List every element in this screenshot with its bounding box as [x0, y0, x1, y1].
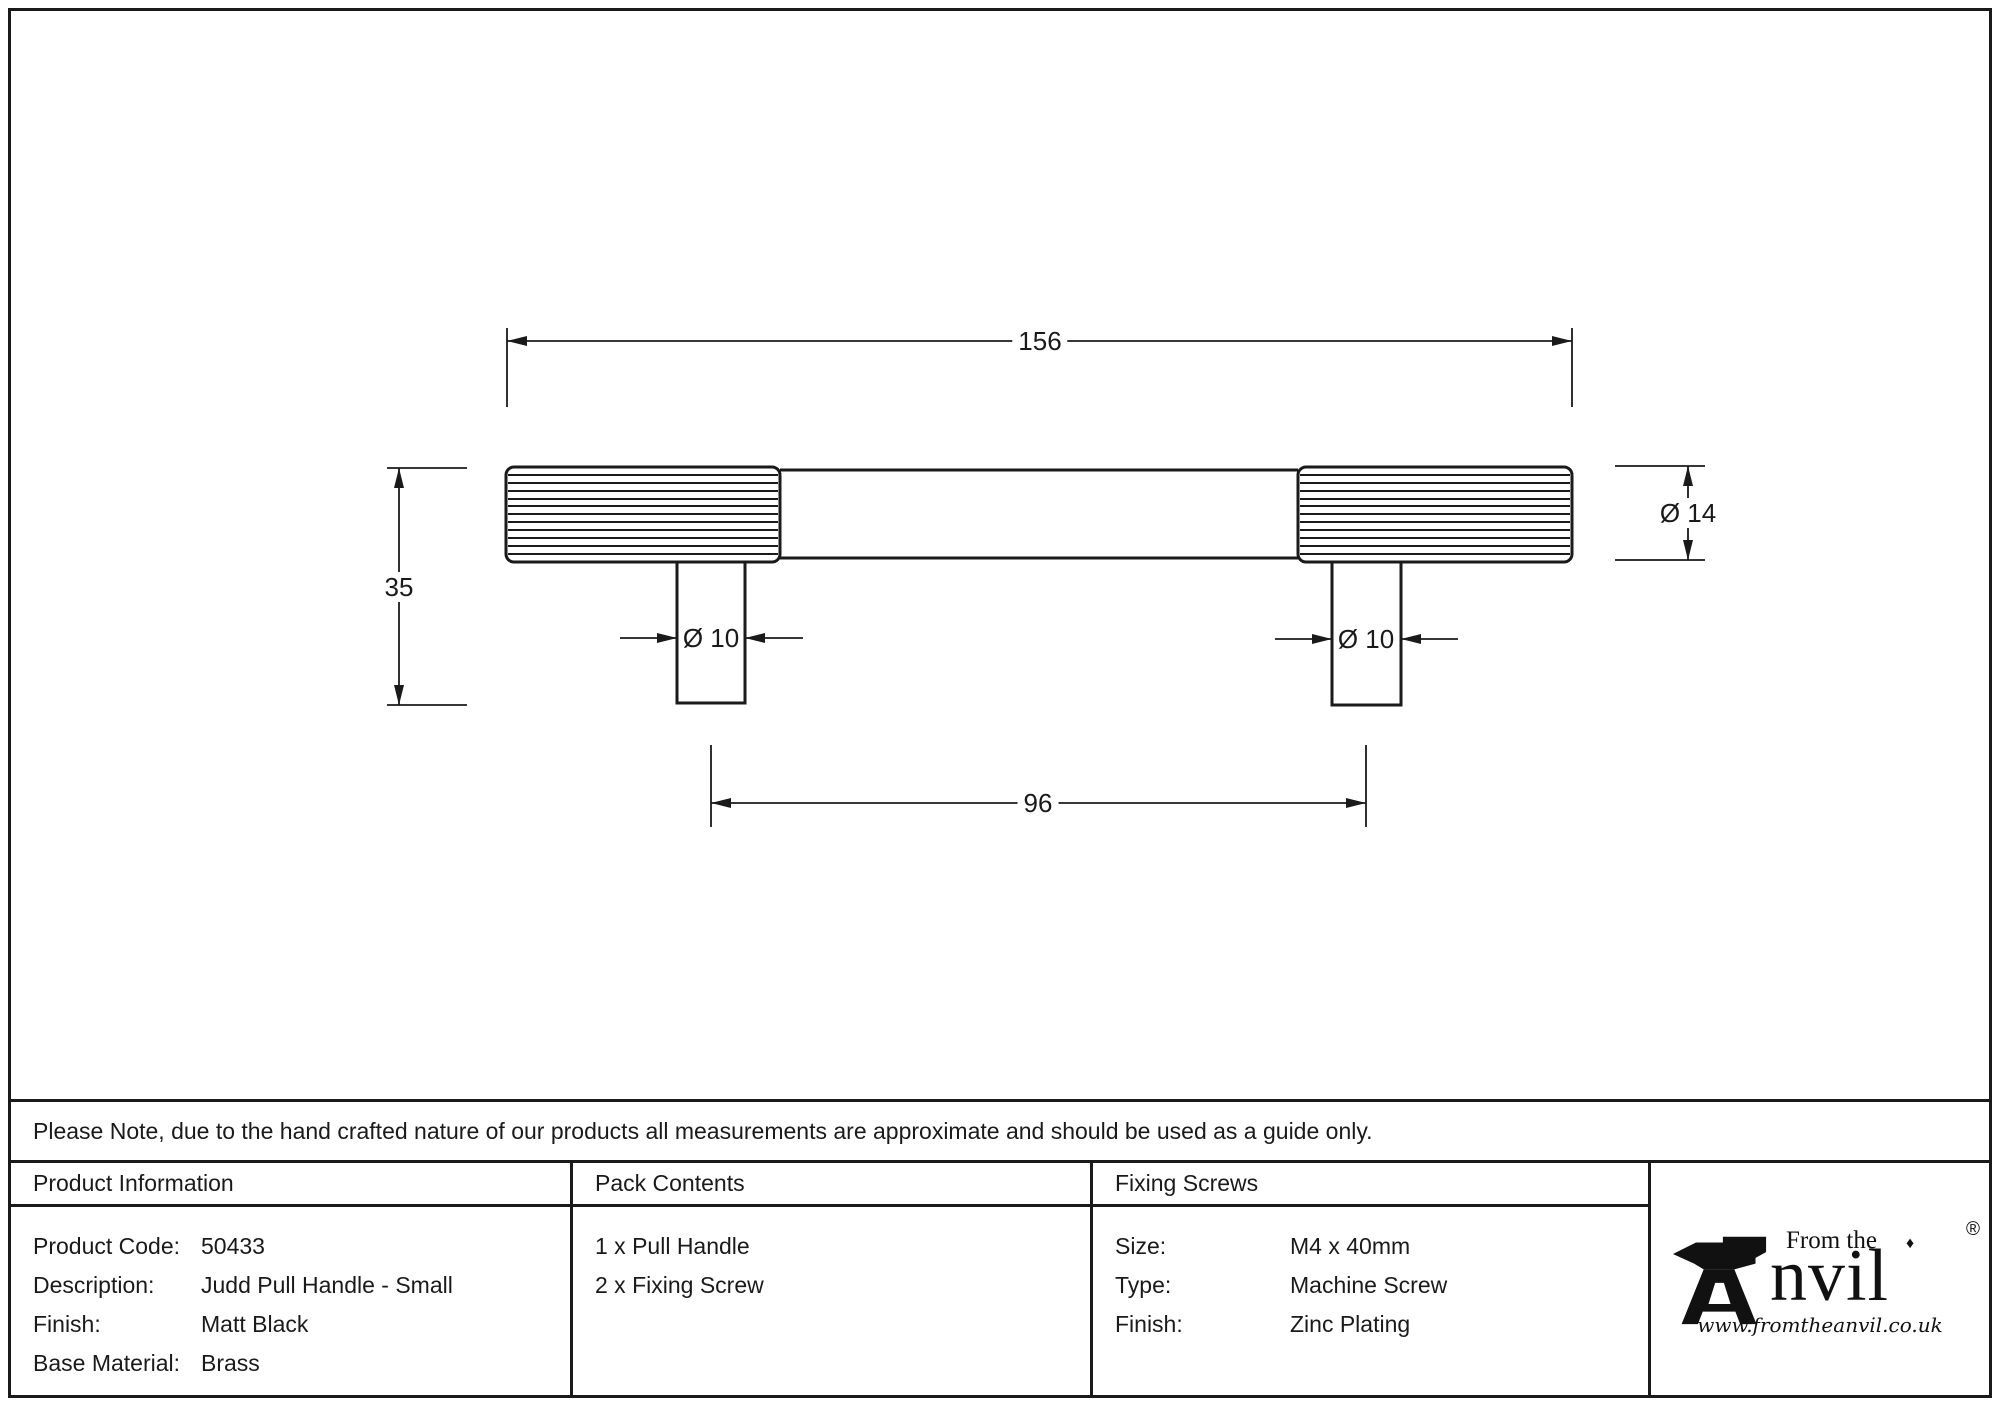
pull-handle-drawing-svg: [11, 11, 1989, 1099]
base-material-value: Brass: [201, 1350, 260, 1377]
dim-bar-diameter-label: Ø 14: [1654, 498, 1722, 528]
fixing-screws-column: Fixing Screws Size: M4 x 40mm Type: Mach…: [1093, 1163, 1651, 1395]
technical-drawing-area: 156 35 Ø 10 Ø 10 Ø 14 96: [11, 11, 1989, 1099]
table-row: Description: Judd Pull Handle - Small: [33, 1266, 570, 1305]
screw-size-value: M4 x 40mm: [1290, 1233, 1410, 1260]
left-end-cap: [506, 467, 780, 562]
description-label: Description:: [33, 1272, 201, 1299]
finish-value: Matt Black: [201, 1311, 308, 1338]
dim-fixing-centres-label: 96: [1018, 788, 1059, 818]
screw-type-value: Machine Screw: [1290, 1272, 1447, 1299]
handle-bar: [780, 470, 1298, 558]
brand-logo-cell: From the ♦ nvil ® www.fromtheanvil.co.uk: [1651, 1163, 1989, 1395]
table-row: Product Code: 50433: [33, 1227, 570, 1266]
measurement-note: Please Note, due to the hand crafted nat…: [11, 1099, 1989, 1160]
description-value: Judd Pull Handle - Small: [201, 1272, 453, 1299]
right-end-cap: [1298, 467, 1572, 562]
logo-website: www.fromtheanvil.co.uk: [1668, 1313, 1972, 1337]
screw-type-label: Type:: [1115, 1272, 1290, 1299]
pack-contents-column: Pack Contents 1 x Pull Handle 2 x Fixing…: [573, 1163, 1093, 1395]
product-code-label: Product Code:: [33, 1233, 201, 1260]
dim-right-post-diameter-label: Ø 10: [1335, 624, 1397, 654]
list-item: 2 x Fixing Screw: [595, 1266, 1090, 1305]
table-row: Finish: Zinc Plating: [1115, 1305, 1648, 1344]
diamond-icon: ♦: [1906, 1235, 1914, 1253]
outer-frame: 156 35 Ø 10 Ø 10 Ø 14 96 Please Note, du…: [8, 8, 1992, 1398]
table-row: Base Material: Brass: [33, 1344, 570, 1383]
dim-left-post-diameter-label: Ø 10: [680, 623, 742, 653]
spec-table: Product Information Product Code: 50433 …: [11, 1160, 1989, 1395]
product-code-value: 50433: [201, 1233, 265, 1260]
screw-finish-value: Zinc Plating: [1290, 1311, 1410, 1338]
pack-contents-header: Pack Contents: [573, 1163, 1090, 1207]
screw-finish-label: Finish:: [1115, 1311, 1290, 1338]
product-spec-sheet: 156 35 Ø 10 Ø 10 Ø 14 96 Please Note, du…: [0, 0, 2000, 1406]
dimension-lines: [387, 328, 1705, 827]
brand-anvil-text: nvil: [1770, 1239, 1889, 1313]
base-material-label: Base Material:: [33, 1350, 201, 1377]
product-information-column: Product Information Product Code: 50433 …: [11, 1163, 573, 1395]
finish-label: Finish:: [33, 1311, 201, 1338]
table-row: Type: Machine Screw: [1115, 1266, 1648, 1305]
screw-size-label: Size:: [1115, 1233, 1290, 1260]
from-the-anvil-logo: From the ♦ nvil ® www.fromtheanvil.co.uk: [1668, 1223, 1972, 1335]
registered-trademark-icon: ®: [1966, 1219, 1980, 1241]
product-information-header: Product Information: [11, 1163, 570, 1207]
list-item: 1 x Pull Handle: [595, 1227, 1090, 1266]
table-row: Finish: Matt Black: [33, 1305, 570, 1344]
dim-height-label: 35: [379, 572, 420, 602]
dim-overall-length-label: 156: [1012, 326, 1067, 356]
table-row: Size: M4 x 40mm: [1115, 1227, 1648, 1266]
fixing-screws-header: Fixing Screws: [1093, 1163, 1648, 1207]
